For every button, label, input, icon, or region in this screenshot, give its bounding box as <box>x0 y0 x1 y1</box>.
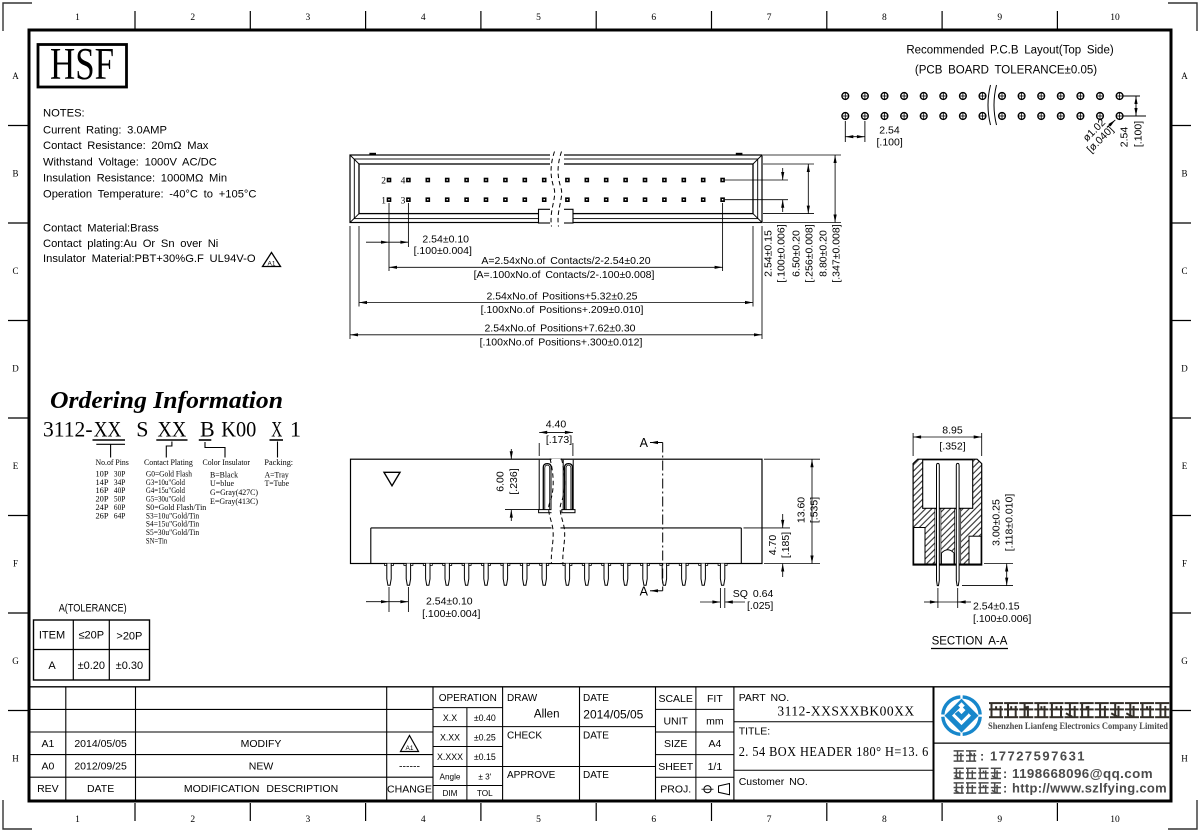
svg-text:A4: A4 <box>708 738 721 750</box>
svg-text:D: D <box>12 364 19 374</box>
svg-text:PART NO.: PART NO. <box>739 692 789 704</box>
svg-text:2: 2 <box>381 177 386 187</box>
svg-text:Allen: Allen <box>534 709 560 721</box>
svg-text:2.54±0.15: 2.54±0.15 <box>973 601 1020 613</box>
svg-text:64P: 64P <box>114 510 126 520</box>
svg-text:8: 8 <box>882 815 887 825</box>
svg-text::: : <box>1003 782 1007 796</box>
svg-text:2.54: 2.54 <box>1119 127 1131 148</box>
svg-text:Insulation Resistance: 1000MΩ: Insulation Resistance: 1000MΩ Min <box>43 173 227 185</box>
svg-text:HSF: HSF <box>50 39 114 89</box>
svg-text:OPERATION: OPERATION <box>439 693 497 704</box>
svg-text:SIZE: SIZE <box>664 738 687 750</box>
svg-text:S: S <box>136 417 148 442</box>
svg-text:8.95: 8.95 <box>942 425 963 437</box>
svg-text:B: B <box>12 169 18 179</box>
svg-text:NOTES:: NOTES: <box>43 108 85 120</box>
svg-text:A: A <box>640 436 649 450</box>
svg-text:3.00±0.25: 3.00±0.25 <box>991 499 1003 546</box>
svg-text:[.100]: [.100] <box>877 137 903 149</box>
svg-text:±0.15: ±0.15 <box>474 752 496 762</box>
svg-text:2.54±0.15: 2.54±0.15 <box>763 230 775 277</box>
svg-text:8: 8 <box>882 13 887 23</box>
svg-text:4.70: 4.70 <box>767 535 779 556</box>
svg-text:NEW: NEW <box>249 761 274 773</box>
svg-text:E: E <box>13 461 19 471</box>
svg-text:Customer NO.: Customer NO. <box>739 776 808 788</box>
svg-text:Contact plating:Au Or Sn over: Contact plating:Au Or Sn over Ni <box>43 238 218 250</box>
svg-text:G: G <box>12 656 19 666</box>
svg-text:26P: 26P <box>96 510 109 520</box>
svg-text:4: 4 <box>421 13 426 23</box>
svg-text:± 3': ± 3' <box>478 773 491 782</box>
svg-text:X.XX: X.XX <box>440 732 460 742</box>
svg-text:SECTION A-A: SECTION A-A <box>932 636 1008 648</box>
svg-text:10: 10 <box>1110 815 1120 825</box>
svg-text:TOL: TOL <box>477 789 493 798</box>
svg-text:2.54±0.10: 2.54±0.10 <box>426 595 473 607</box>
svg-text:8.80±0.20: 8.80±0.20 <box>818 230 830 277</box>
svg-text:9: 9 <box>997 815 1002 825</box>
svg-text:6.50±0.20: 6.50±0.20 <box>791 230 803 277</box>
svg-text:Insulator Material:PBT+30%G.F: Insulator Material:PBT+30%G.F UL94V-O <box>43 253 256 265</box>
svg-text:2.54xNo.of Positions+7.62±0.30: 2.54xNo.of Positions+7.62±0.30 <box>484 323 635 335</box>
svg-text:[.025]: [.025] <box>747 600 773 612</box>
svg-text:2.54xNo.of Positions+5.32±0.25: 2.54xNo.of Positions+5.32±0.25 <box>486 290 637 302</box>
svg-text:[.100]: [.100] <box>1133 121 1145 147</box>
svg-text:1198668096@qq.com: 1198668096@qq.com <box>1012 766 1153 781</box>
svg-text:17727597631: 17727597631 <box>990 749 1086 764</box>
svg-text:[.185]: [.185] <box>780 532 792 558</box>
svg-text:7: 7 <box>767 13 772 23</box>
svg-text:A0: A0 <box>41 761 54 773</box>
svg-text:DATE: DATE <box>583 730 609 741</box>
svg-text:±0.40: ±0.40 <box>474 713 496 723</box>
svg-text:F: F <box>1182 559 1187 569</box>
svg-text:7: 7 <box>767 815 772 825</box>
svg-text:1: 1 <box>75 13 80 23</box>
svg-text:A=2.54xNo.of Contacts/2-2.54±0: A=2.54xNo.of Contacts/2-2.54±0.20 <box>481 255 650 267</box>
svg-text:Color Insulator: Color Insulator <box>203 457 251 467</box>
svg-text:5: 5 <box>536 13 541 23</box>
svg-text:4: 4 <box>401 177 406 187</box>
svg-text:X.X: X.X <box>443 713 457 723</box>
svg-text:F: F <box>13 559 18 569</box>
svg-text:[.100±0.006]: [.100±0.006] <box>973 613 1031 625</box>
svg-text:2: 2 <box>190 815 195 825</box>
svg-text:2014/05/05: 2014/05/05 <box>583 708 643 722</box>
svg-text:Withstand Voltage: 1000V AC/DC: Withstand Voltage: 1000V AC/DC <box>43 156 217 168</box>
svg-text:5: 5 <box>536 815 541 825</box>
svg-text:≤20P: ≤20P <box>78 630 104 642</box>
svg-text:1: 1 <box>290 417 301 442</box>
svg-text:E=Gray(413C): E=Gray(413C) <box>210 496 258 506</box>
svg-text:X: X <box>271 417 282 442</box>
svg-text:D: D <box>1181 364 1188 374</box>
svg-text:10: 10 <box>1110 13 1120 23</box>
svg-text:No.of Pins: No.of Pins <box>96 457 130 467</box>
svg-text:H: H <box>12 754 19 764</box>
svg-text:mm: mm <box>706 716 724 728</box>
svg-text:2.54±0.10: 2.54±0.10 <box>422 234 469 246</box>
svg-text:SN=Tin: SN=Tin <box>146 535 168 545</box>
svg-text:±0.30: ±0.30 <box>116 660 143 672</box>
svg-text:SQ 0.64: SQ 0.64 <box>733 588 774 600</box>
svg-text:XX: XX <box>158 417 187 442</box>
svg-text:SCALE: SCALE <box>658 693 692 705</box>
svg-text:APPROVE: APPROVE <box>507 770 556 781</box>
svg-text:6.00: 6.00 <box>495 471 507 492</box>
svg-text:2: 2 <box>190 13 195 23</box>
svg-text:K00: K00 <box>221 417 256 442</box>
svg-text:±0.25: ±0.25 <box>474 732 496 742</box>
svg-text:A1: A1 <box>268 261 276 268</box>
svg-text:H: H <box>1181 754 1188 764</box>
svg-text:A: A <box>1181 71 1188 81</box>
svg-text:UNIT: UNIT <box>663 716 688 728</box>
svg-text:[.236]: [.236] <box>508 468 520 494</box>
svg-text:Current Rating: 3.0AMP: Current Rating: 3.0AMP <box>43 124 167 136</box>
svg-text:Contact Material:Brass: Contact Material:Brass <box>43 223 159 235</box>
svg-text:[.100xNo.of Positions+.300±0.0: [.100xNo.of Positions+.300±0.012] <box>480 336 643 348</box>
svg-text:(PCB BOARD TOLERANCE±0.05): (PCB BOARD TOLERANCE±0.05) <box>915 65 1097 77</box>
svg-text:DATE: DATE <box>87 783 114 795</box>
svg-text:SHEET: SHEET <box>658 761 694 773</box>
svg-text:[.256±0.008]: [.256±0.008] <box>804 224 816 282</box>
svg-text:2014/05/05: 2014/05/05 <box>74 738 127 750</box>
svg-text:3: 3 <box>401 196 406 206</box>
svg-text:CHANGE: CHANGE <box>387 784 432 796</box>
svg-text:A: A <box>48 660 56 672</box>
svg-text:A: A <box>12 71 19 81</box>
svg-text:X.XXX: X.XXX <box>437 752 463 762</box>
svg-text:A1: A1 <box>41 738 54 750</box>
svg-text:Operation Temperature: -40°C t: Operation Temperature: -40°C to +105°C <box>43 189 256 201</box>
svg-text:TITLE:: TITLE: <box>739 726 771 738</box>
svg-text:XX: XX <box>94 417 122 442</box>
svg-text:1: 1 <box>381 196 386 206</box>
svg-text:3: 3 <box>306 13 311 23</box>
svg-text:A: A <box>640 584 649 598</box>
svg-text:MODIFY: MODIFY <box>241 738 282 750</box>
svg-text:[.100±0.004]: [.100±0.004] <box>422 608 480 620</box>
svg-text::: : <box>1003 767 1007 781</box>
svg-text:13.60: 13.60 <box>796 497 808 523</box>
svg-text:3: 3 <box>306 815 311 825</box>
svg-text:2. 54 BOX HEADER 180° H=13. 6: 2. 54 BOX HEADER 180° H=13. 6 <box>739 744 929 759</box>
svg-text:[.118±0.010]: [.118±0.010] <box>1004 494 1016 552</box>
svg-text:1/1: 1/1 <box>708 761 723 773</box>
svg-text:[.100±0.004]: [.100±0.004] <box>414 245 472 257</box>
svg-text:2.54: 2.54 <box>879 125 900 137</box>
svg-text:1: 1 <box>75 815 80 825</box>
svg-text:DATE: DATE <box>583 693 609 704</box>
svg-text:C: C <box>12 266 18 276</box>
svg-text:T=Tube: T=Tube <box>265 478 290 488</box>
svg-text:Recommended P.C.B Layout(Top S: Recommended P.C.B Layout(Top Side) <box>906 45 1114 57</box>
svg-text:B: B <box>1181 169 1187 179</box>
svg-text:[.352]: [.352] <box>939 441 965 453</box>
svg-text:CHECK: CHECK <box>507 730 542 741</box>
svg-text:ITEM: ITEM <box>39 630 65 642</box>
svg-text:REV: REV <box>37 783 59 795</box>
svg-text:[A=.100xNo.of Contacts/2-.100±: [A=.100xNo.of Contacts/2-.100±0.008] <box>474 269 655 281</box>
svg-text:Packing:: Packing: <box>264 457 293 467</box>
svg-text:C: C <box>1181 266 1187 276</box>
svg-text:DRAW: DRAW <box>507 693 538 704</box>
svg-text:±0.20: ±0.20 <box>78 660 105 672</box>
svg-text::: : <box>980 750 984 764</box>
svg-text:[.100±0.006]: [.100±0.006] <box>776 224 788 282</box>
svg-text:4: 4 <box>421 815 426 825</box>
svg-text:A(TOLERANCE): A(TOLERANCE) <box>59 603 127 615</box>
svg-text:B: B <box>200 417 215 442</box>
svg-text:PROJ.: PROJ. <box>660 783 691 795</box>
svg-text:2012/09/25: 2012/09/25 <box>74 761 127 773</box>
svg-text:>20P: >20P <box>116 631 142 643</box>
svg-text:9: 9 <box>997 13 1002 23</box>
svg-text:DIM: DIM <box>442 789 457 798</box>
svg-text:------: ------ <box>399 761 420 773</box>
svg-text:Contact Plating: Contact Plating <box>144 457 193 467</box>
svg-text:[.347±0.008]: [.347±0.008] <box>831 224 843 282</box>
svg-text:A1: A1 <box>406 745 414 752</box>
svg-text:3112-XXSXXBK00XX: 3112-XXSXXBK00XX <box>777 704 914 719</box>
svg-text:MODIFICATION DESCRIPTION: MODIFICATION DESCRIPTION <box>184 783 338 795</box>
svg-text:Ordering Information: Ordering Information <box>50 387 283 414</box>
svg-text:Angle: Angle <box>440 773 461 782</box>
svg-text:Contact Resistance: 20mΩ Max: Contact Resistance: 20mΩ Max <box>43 140 209 152</box>
svg-text:3112-: 3112- <box>43 417 93 442</box>
svg-text:DATE: DATE <box>583 770 609 781</box>
svg-text:6: 6 <box>651 815 656 825</box>
svg-text:FIT: FIT <box>707 693 723 705</box>
svg-text:[.100xNo.of Positions+.209±0.0: [.100xNo.of Positions+.209±0.010] <box>481 304 644 316</box>
svg-text:[.535]: [.535] <box>809 497 821 523</box>
svg-text:Shenzhen Lianfeng Electronics: Shenzhen Lianfeng Electronics Company Li… <box>988 722 1169 732</box>
svg-text:G: G <box>1181 656 1188 666</box>
svg-text:http://www.szlfying.com: http://www.szlfying.com <box>1012 781 1167 796</box>
svg-text:E: E <box>1182 461 1188 471</box>
svg-text:6: 6 <box>651 13 656 23</box>
svg-text:[.173]: [.173] <box>546 434 572 446</box>
svg-text:4.40: 4.40 <box>546 418 567 430</box>
